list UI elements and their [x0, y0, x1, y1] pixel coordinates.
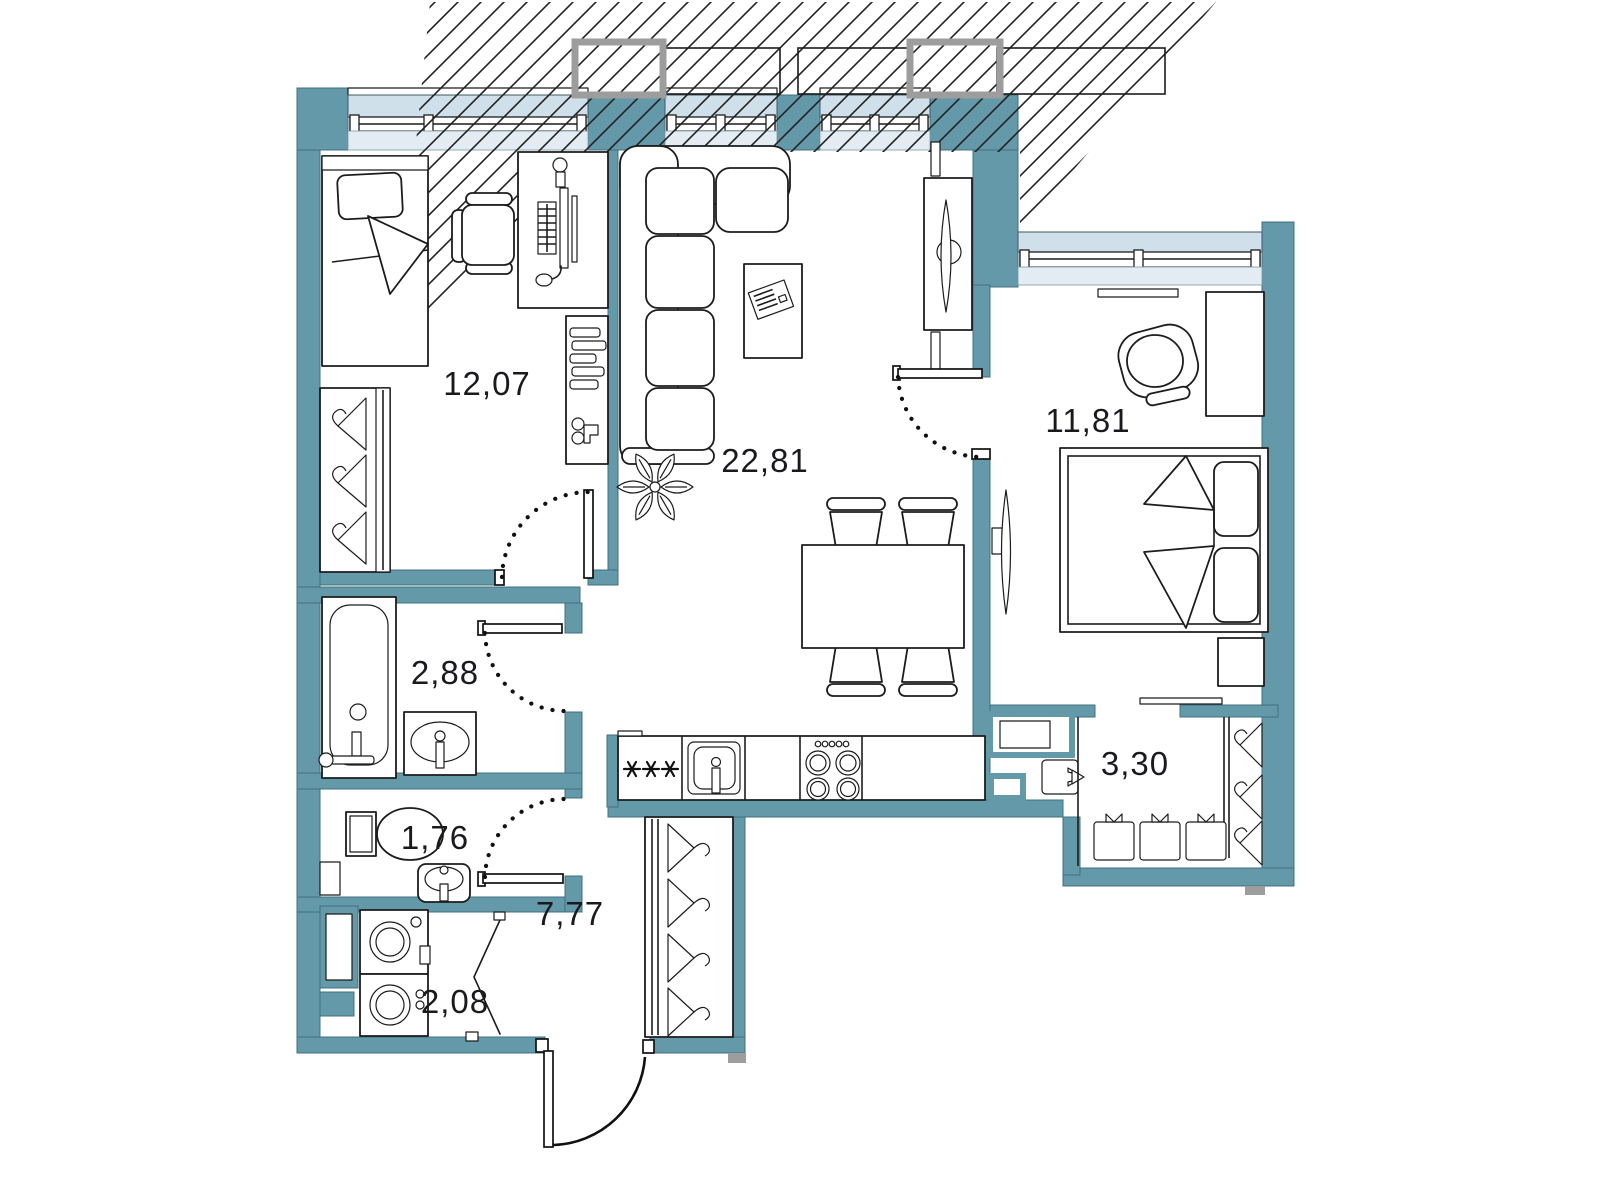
- laundry-bifold-door: [466, 912, 505, 1041]
- tv-unit-living: [924, 142, 972, 370]
- bookshelf: [566, 316, 608, 464]
- washer-1: [360, 910, 430, 974]
- area-label-walk-in-closet: 3,30: [1101, 745, 1169, 783]
- bed-single: [322, 156, 428, 366]
- bed-double: [1060, 448, 1268, 632]
- area-label-hallway: 7,77: [536, 895, 604, 933]
- bathtub: [319, 597, 396, 778]
- area-label-living-kitchen: 22,81: [721, 442, 809, 480]
- closet-appliance: [990, 714, 1072, 755]
- dresser-bedroom-2: [1206, 292, 1264, 416]
- wardrobe-bedroom-1: [320, 388, 390, 572]
- dining-table-chairs: [802, 498, 964, 696]
- door-bedroom-1: [495, 490, 593, 585]
- area-label-bedroom-1: 12,07: [443, 365, 531, 403]
- area-label-bathroom: 2,88: [411, 654, 479, 692]
- laundry-shaft: [320, 906, 358, 1016]
- door-bedroom-2: [893, 366, 990, 459]
- door-toilet: [478, 799, 565, 886]
- nightstand: [1218, 638, 1264, 686]
- desk: [518, 152, 608, 308]
- door-bathroom: [478, 621, 565, 711]
- wardrobe-hallway: [645, 817, 733, 1037]
- closet-vent-box: [991, 776, 1023, 798]
- area-label-bedroom-2: 11,81: [1045, 402, 1130, 440]
- closet-drawers: [1094, 814, 1226, 860]
- tv-bedroom-2: [992, 490, 1011, 614]
- closet-hangers: [1235, 723, 1262, 865]
- area-label-laundry: 2,08: [421, 983, 489, 1021]
- floor-plan-page: 12,07 22,81 11,81 2,88 1,76 7,77 2,08 3,…: [0, 0, 1600, 1200]
- window-bedroom-2: [1018, 232, 1262, 285]
- area-label-toilet: 1,76: [401, 819, 469, 857]
- vent-shaft-toilet: [320, 862, 340, 895]
- round-chair: [1113, 319, 1203, 406]
- kitchen-counter: [618, 731, 985, 800]
- closet-shelf-line: [1140, 698, 1222, 704]
- radiator-bedroom-2: [1098, 289, 1178, 297]
- washer-2: [360, 974, 428, 1036]
- coffee-table: [744, 264, 802, 358]
- bathroom-sink: [404, 712, 476, 775]
- kitchen-sink: [688, 742, 740, 794]
- toilet-sink: [418, 864, 470, 902]
- floor-plan-drawing: [0, 0, 1600, 1200]
